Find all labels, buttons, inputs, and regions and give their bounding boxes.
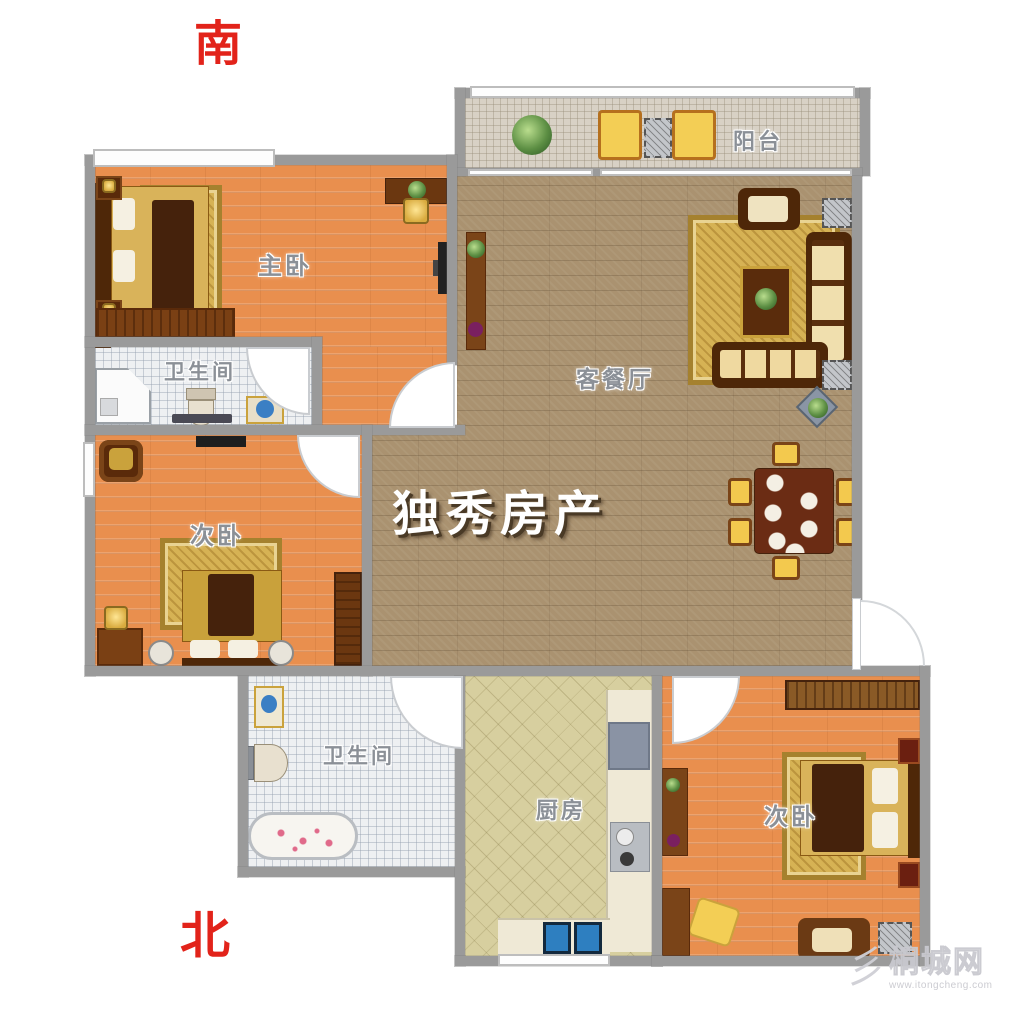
site-watermark-url: www.itongcheng.com — [889, 980, 993, 991]
coffee-table-plant — [755, 288, 777, 310]
floor-plant — [808, 398, 828, 418]
bedroom-left-dresser-lamp — [104, 606, 128, 630]
window — [468, 169, 593, 176]
wall — [85, 337, 322, 347]
dining-chair — [772, 442, 800, 466]
bathtub — [248, 812, 358, 860]
window — [498, 954, 610, 966]
wall — [238, 676, 248, 877]
bedroom-right-wardrobe — [785, 680, 920, 710]
master-table-lamp — [403, 198, 429, 224]
entry-door-leaf — [852, 598, 861, 670]
stove-burner — [620, 852, 634, 866]
bedroom-right-desk-plant — [666, 778, 680, 792]
wall — [85, 666, 930, 676]
wall — [852, 176, 862, 600]
wall — [362, 425, 372, 676]
wall — [447, 155, 457, 365]
tongcheng-logo-icon: 彡 — [840, 945, 885, 990]
kitchen-sink — [574, 922, 602, 954]
room-label-master-bedroom: 主卧 — [258, 246, 312, 281]
balcony-chair — [598, 110, 642, 160]
bedroom-left-tv — [196, 436, 246, 447]
side-table — [822, 198, 852, 228]
compass-north-label: 北 — [180, 896, 230, 968]
bedroom-right-bed-quilt — [812, 764, 864, 852]
compass-south-label: 南 — [194, 4, 242, 74]
bedroom-left-dresser — [97, 628, 143, 666]
master-tv — [438, 242, 447, 294]
room-label-bedroom-left: 次卧 — [190, 516, 244, 551]
bedroom-left-bed-pillow — [190, 640, 220, 658]
bedroom-left-bed-headboard — [182, 658, 282, 666]
master-nightstand-lamp — [102, 179, 116, 193]
bedroom-right-desk-vase — [667, 834, 680, 847]
toilet-lower-bowl — [254, 744, 288, 782]
room-label-living-dining: 客餐厅 — [576, 360, 654, 394]
site-watermark-name: 桐城网 — [889, 948, 993, 978]
bedroom-right-bed-headboard — [908, 758, 920, 858]
bath-mat — [172, 414, 232, 423]
brand-watermark: 独秀房产 — [392, 474, 608, 544]
wall — [652, 676, 662, 966]
living-console-plant — [467, 240, 485, 258]
bedroom-right-bed-pillow — [872, 768, 898, 804]
bedroom-left-bed-pillow — [228, 640, 258, 658]
master-bed-pillow — [113, 250, 135, 282]
dining-chair — [728, 518, 752, 546]
hallway-floor — [372, 435, 457, 666]
bedroom-right-bedpost — [898, 862, 920, 888]
sofa-bottom-cushions — [720, 350, 820, 378]
dining-table — [754, 468, 834, 554]
bedroom-right-bed-pillow — [872, 812, 898, 848]
master-dresser-plant — [408, 181, 426, 199]
wall — [860, 88, 870, 176]
bedroom-right-dresser — [662, 888, 690, 956]
wall — [238, 867, 465, 877]
bedroom-left-bed-quilt — [208, 574, 254, 636]
dining-chair — [772, 556, 800, 580]
kitchen-sink — [543, 922, 571, 954]
toilet-upper-tank — [186, 388, 216, 400]
room-label-balcony: 阳台 — [733, 124, 783, 156]
bedroom-left-chair-cushion — [109, 448, 133, 470]
bath-basin-lower-bowl — [261, 695, 277, 713]
stove-burner — [616, 828, 634, 846]
bedroom-left-wardrobe — [334, 572, 362, 666]
bedroom-left-stool — [148, 640, 174, 666]
wall — [920, 666, 930, 966]
side-table — [822, 360, 852, 390]
balcony-table — [644, 118, 672, 158]
room-label-bathroom-upper: 卫生间 — [164, 356, 236, 386]
wall — [85, 155, 95, 676]
balcony-chair — [672, 110, 716, 160]
bedroom-right-bedpost — [898, 738, 920, 764]
fridge — [608, 722, 650, 770]
window — [470, 86, 855, 98]
floor-plan-page: { "compass": { "south": "南", "north": "北… — [0, 0, 1011, 1024]
window — [83, 442, 95, 497]
room-label-kitchen: 厨房 — [536, 793, 586, 825]
dining-chair — [728, 478, 752, 506]
sofa-single-cushion — [748, 196, 788, 222]
window — [93, 149, 275, 167]
bath-basin-upper-bowl — [256, 400, 274, 418]
master-tv-stand — [433, 260, 438, 276]
window — [600, 169, 852, 176]
bedroom-left-stool — [268, 640, 294, 666]
room-label-bedroom-right: 次卧 — [764, 797, 818, 832]
wall — [312, 337, 322, 435]
master-bed-pillow — [113, 198, 135, 230]
shower-drain — [100, 398, 118, 416]
room-label-bathroom-lower: 卫生间 — [323, 740, 395, 770]
door-arc-entry — [861, 600, 925, 666]
living-console-vase — [468, 322, 483, 337]
balcony-plant — [512, 115, 552, 155]
site-watermark: 彡 桐城网 www.itongcheng.com — [843, 948, 993, 991]
master-storage-bench — [95, 308, 235, 338]
